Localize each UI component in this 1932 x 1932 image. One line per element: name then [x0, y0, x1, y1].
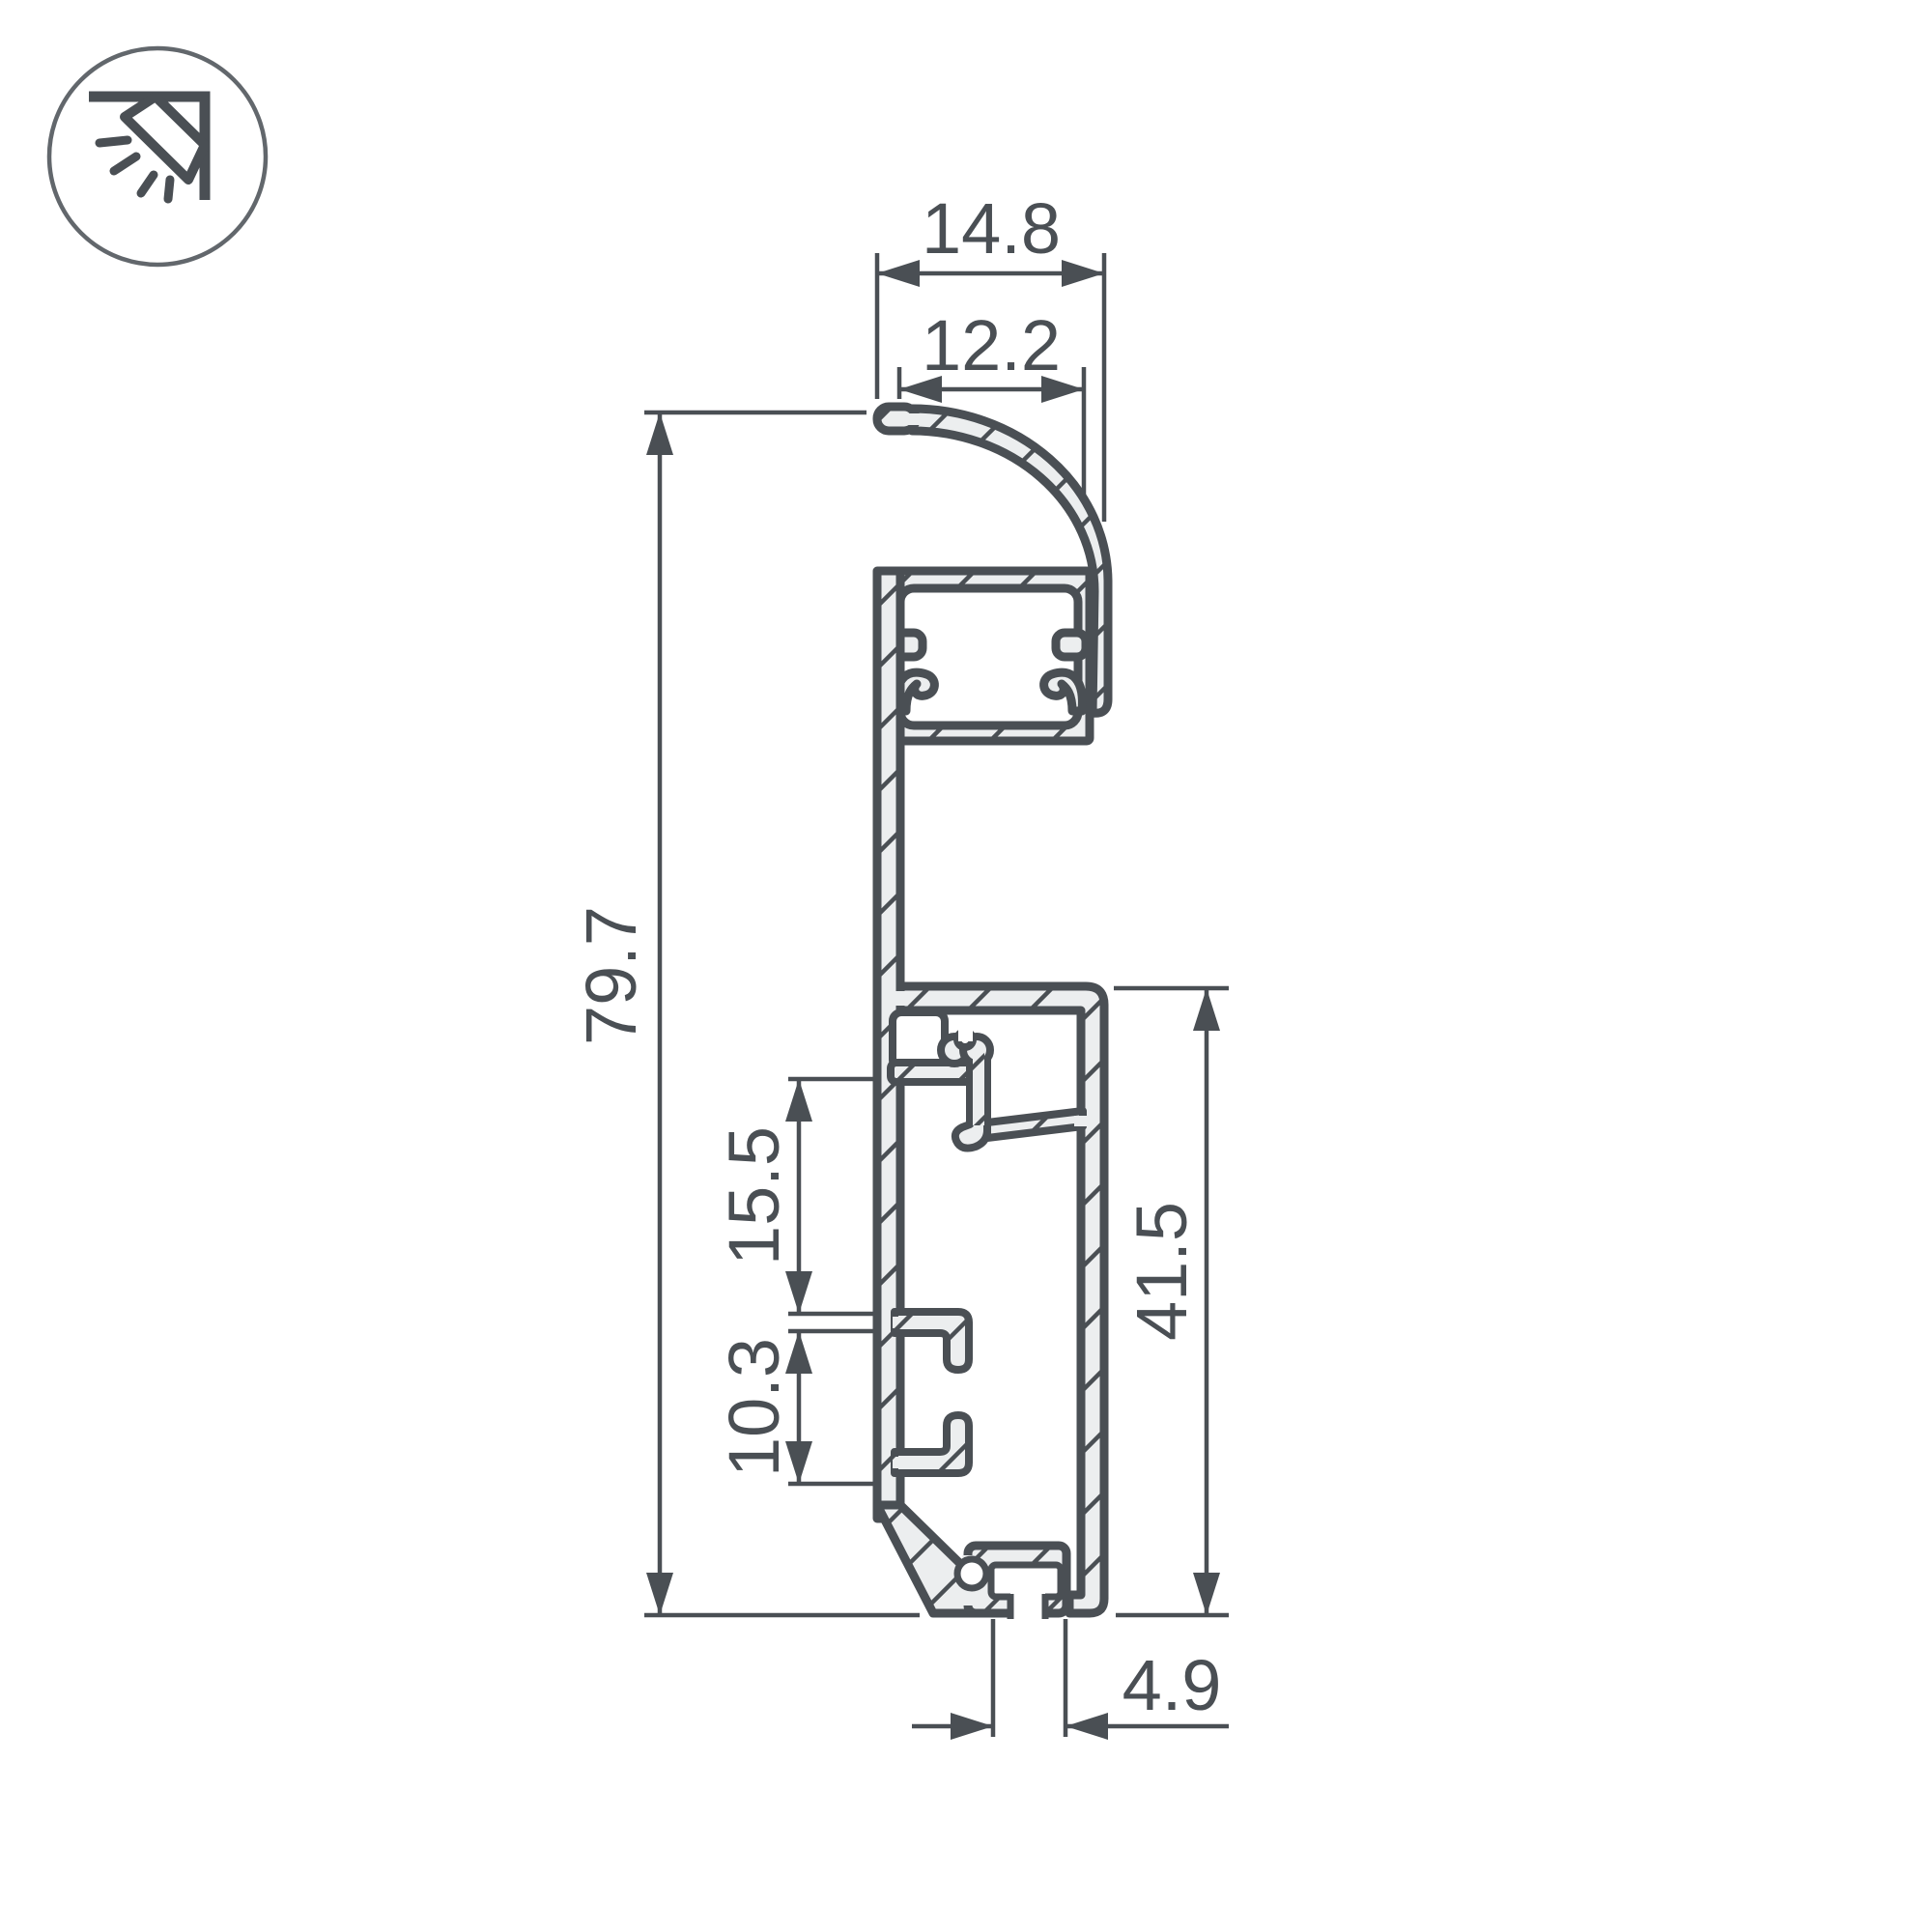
profile-cross-section: [877, 407, 1108, 1621]
dim-hook-gap-label: 10.3: [714, 1338, 794, 1477]
drawing-canvas: 14.8 12.2 79.7 15.5 10.3 41.5 4.9: [0, 0, 1932, 1932]
foot-notch: [957, 1559, 986, 1588]
arrow-up-icon: [785, 1079, 812, 1122]
arrow-left-icon: [1065, 1713, 1108, 1740]
arrow-up-icon: [1193, 988, 1220, 1031]
dim-clip-gap-label: 15.5: [714, 1126, 794, 1265]
arrow-down-icon: [1193, 1573, 1220, 1615]
arrow-up-icon: [646, 412, 673, 455]
dim-clip-gap: [785, 1079, 882, 1314]
icon-lamp: [125, 97, 205, 180]
arrow-right-icon: [1062, 260, 1104, 287]
profile-drawing-svg: 14.8 12.2 79.7 15.5 10.3 41.5 4.9: [0, 0, 1932, 1932]
dim-total-height-label: 79.7: [571, 906, 651, 1045]
arrow-left-icon: [877, 260, 920, 287]
arrow-right-icon: [951, 1713, 993, 1740]
arrow-down-icon: [785, 1271, 812, 1314]
dim-base-height-label: 41.5: [1122, 1202, 1202, 1341]
dim-top-width-label: 14.8: [922, 188, 1061, 269]
dim-visor-width-label: 12.2: [922, 305, 1061, 385]
dim-slot-width-label: 4.9: [1122, 1645, 1222, 1725]
arrow-down-icon: [646, 1573, 673, 1615]
wall-grazing-light-icon: [49, 48, 266, 265]
dim-hook-gap: [785, 1331, 882, 1484]
icon-circle: [49, 48, 266, 265]
pocket-shelf: [891, 1063, 976, 1082]
divider-bar: [987, 1111, 1083, 1138]
led-channel-cavity: [900, 588, 1078, 725]
